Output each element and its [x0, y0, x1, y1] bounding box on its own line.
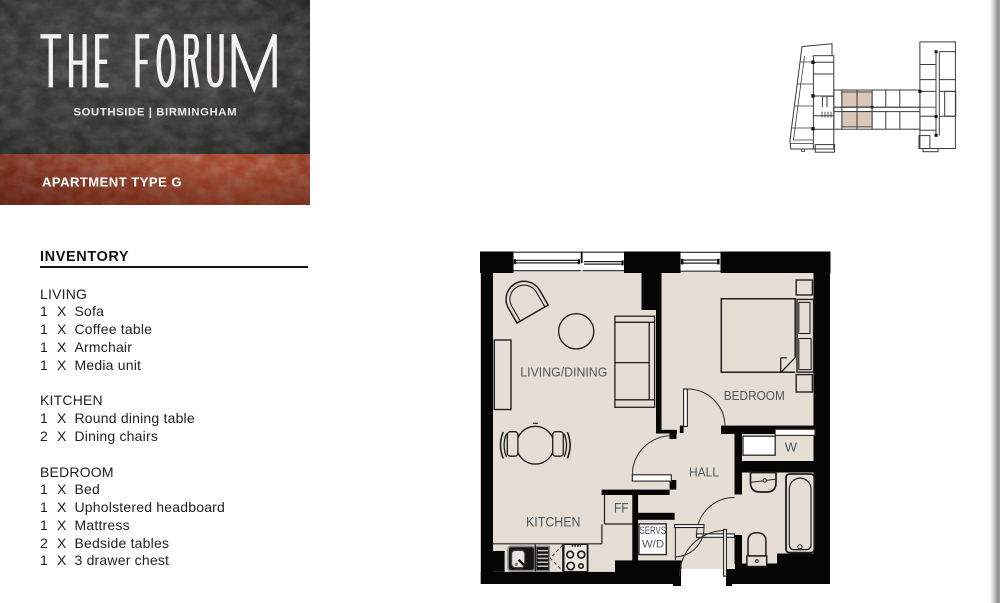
svg-text:SERVS: SERVS: [640, 525, 667, 537]
svg-text:FF: FF: [614, 500, 629, 515]
svg-text:KITCHEN: KITCHEN: [526, 514, 581, 530]
svg-text:BEDROOM: BEDROOM: [724, 388, 785, 403]
svg-text:W/D: W/D: [642, 539, 664, 551]
svg-text:LIVING/DINING: LIVING/DINING: [520, 366, 607, 380]
svg-text:W: W: [785, 439, 798, 454]
svg-text:APARTMENT TYPE G: APARTMENT TYPE G: [42, 175, 182, 190]
svg-text:HALL: HALL: [689, 465, 719, 480]
svg-text:SOUTHSIDE | BIRMINGHAM: SOUTHSIDE | BIRMINGHAM: [74, 106, 237, 118]
